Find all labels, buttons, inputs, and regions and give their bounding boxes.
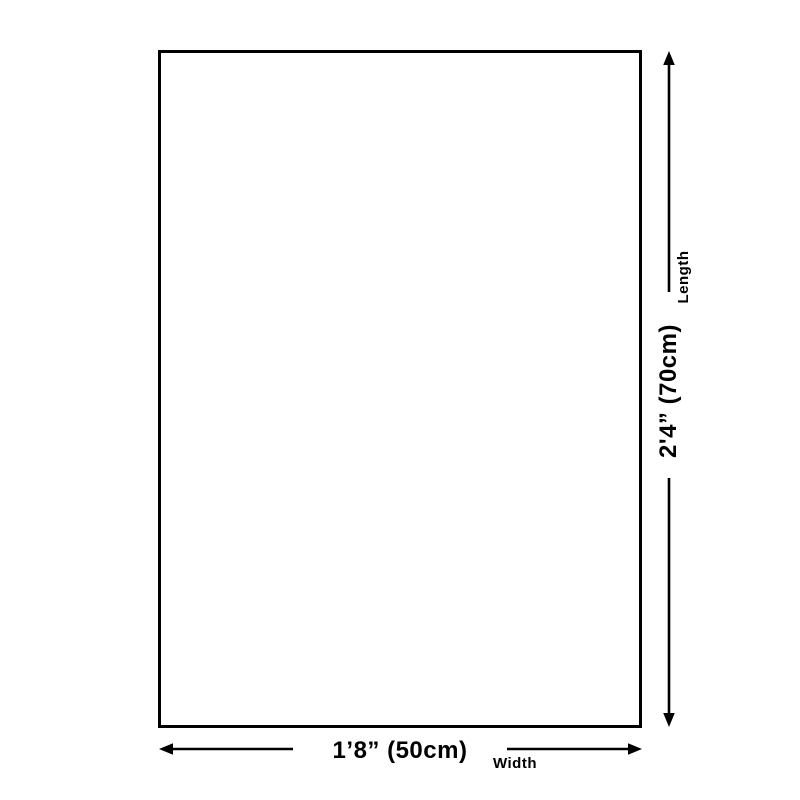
length-dimension-value: 2'4” (70cm): [655, 301, 683, 481]
width-arrow-left-icon: [159, 743, 293, 755]
width-arrow-right-icon: [507, 743, 642, 755]
width-dimension-value: 1’8” (50cm): [310, 737, 490, 765]
length-arrow-down-icon: [663, 478, 675, 727]
width-axis-label: Width: [479, 755, 551, 773]
length-arrow-up-icon: [663, 51, 675, 292]
size-diagram: 1’8” (50cm) Width 2'4” (70cm) Length: [0, 0, 800, 800]
length-axis-label: Length: [675, 241, 693, 313]
